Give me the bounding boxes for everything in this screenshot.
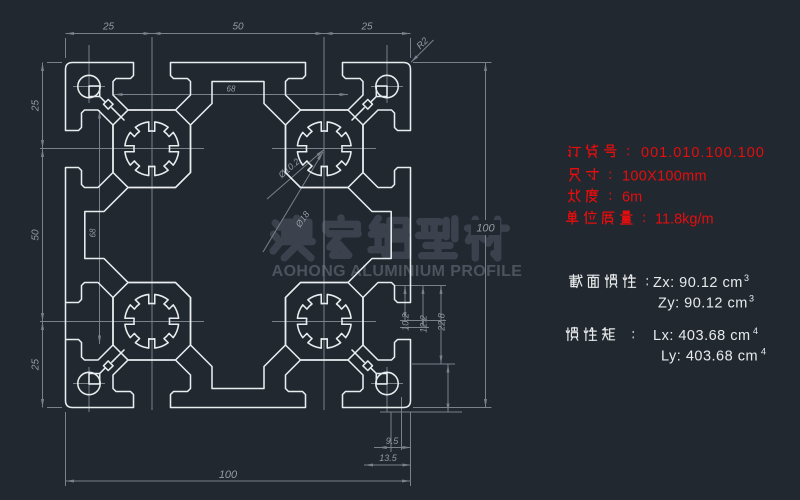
svg-text:13.5: 13.5 [379,453,398,463]
svg-text:100X100mm: 100X100mm [622,169,707,185]
svg-text:Zx: 90.12 cm: Zx: 90.12 cm [653,275,743,291]
svg-text:3: 3 [749,294,754,304]
svg-text:Ly: 403.68 cm: Ly: 403.68 cm [661,349,758,365]
svg-text:6m: 6m [622,190,642,206]
svg-text:68: 68 [227,85,236,94]
svg-text:Lx: 403.68 cm: Lx: 403.68 cm [653,328,751,344]
svg-text:100: 100 [476,223,495,235]
svg-text:Zy: 90.12 cm: Zy: 90.12 cm [658,296,748,312]
svg-text:50: 50 [232,22,244,33]
svg-text:25: 25 [360,22,373,33]
svg-text:9.5: 9.5 [386,436,400,446]
svg-text:4: 4 [761,347,766,357]
svg-text:4: 4 [753,326,758,336]
svg-text:50: 50 [31,229,42,241]
svg-text:100: 100 [219,469,238,481]
svg-text:68: 68 [89,228,98,237]
svg-text:25: 25 [102,22,115,33]
svg-text:10.2: 10.2 [401,313,411,331]
svg-text:3: 3 [744,273,749,283]
svg-text:11.8kg/m: 11.8kg/m [655,212,714,228]
svg-text:001.010.100.100: 001.010.100.100 [641,145,765,161]
svg-text:AOHONG ALUMINIUM PROFILE: AOHONG ALUMINIUM PROFILE [272,263,523,280]
svg-text:25: 25 [31,100,42,113]
svg-text:22.8: 22.8 [437,313,447,332]
svg-text:12.2: 12.2 [419,315,429,333]
svg-text:25: 25 [31,359,42,372]
